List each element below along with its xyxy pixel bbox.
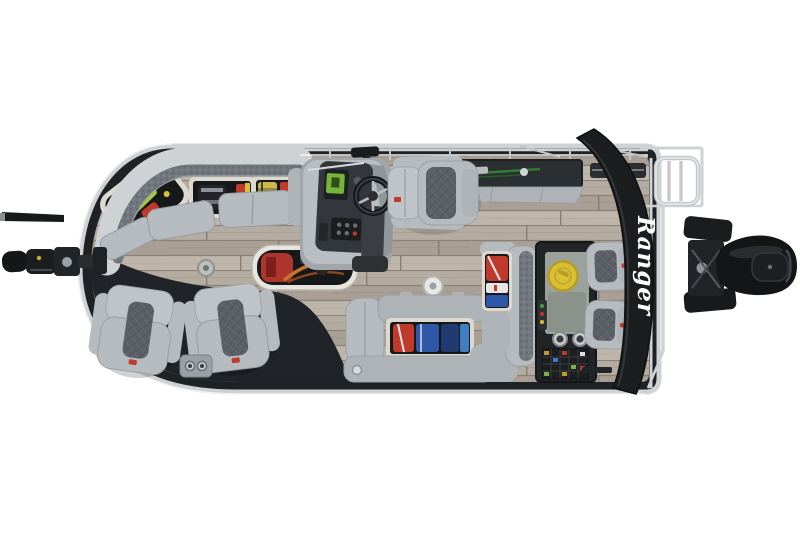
pontoon-boat-photo: Ranger: [0, 0, 800, 533]
flip-cushion-3: [218, 190, 294, 228]
cup-holder-pedestal: [180, 355, 212, 377]
tool-holder-strip: [538, 300, 547, 330]
trolling-motor-shaft: [2, 212, 64, 222]
life-jacket-storage-mid: [386, 318, 474, 358]
deck-drain-bow: [198, 260, 214, 276]
seat-badge: [394, 197, 401, 202]
boarding-ladder: [656, 158, 698, 204]
deck-drain-mid: [424, 277, 443, 296]
outboard-motor: [683, 216, 797, 314]
boat-illustration: Ranger: [0, 0, 800, 533]
stern-step-plate: [582, 367, 612, 373]
tackle-trays: [542, 349, 588, 379]
bimini-logo: Ranger: [632, 215, 659, 317]
seat-badge: [231, 357, 240, 363]
livewell-lid: [549, 262, 578, 291]
life-jacket-storage-stern: [482, 251, 512, 311]
helm-console: [300, 158, 393, 272]
captain-chair: [387, 155, 481, 235]
